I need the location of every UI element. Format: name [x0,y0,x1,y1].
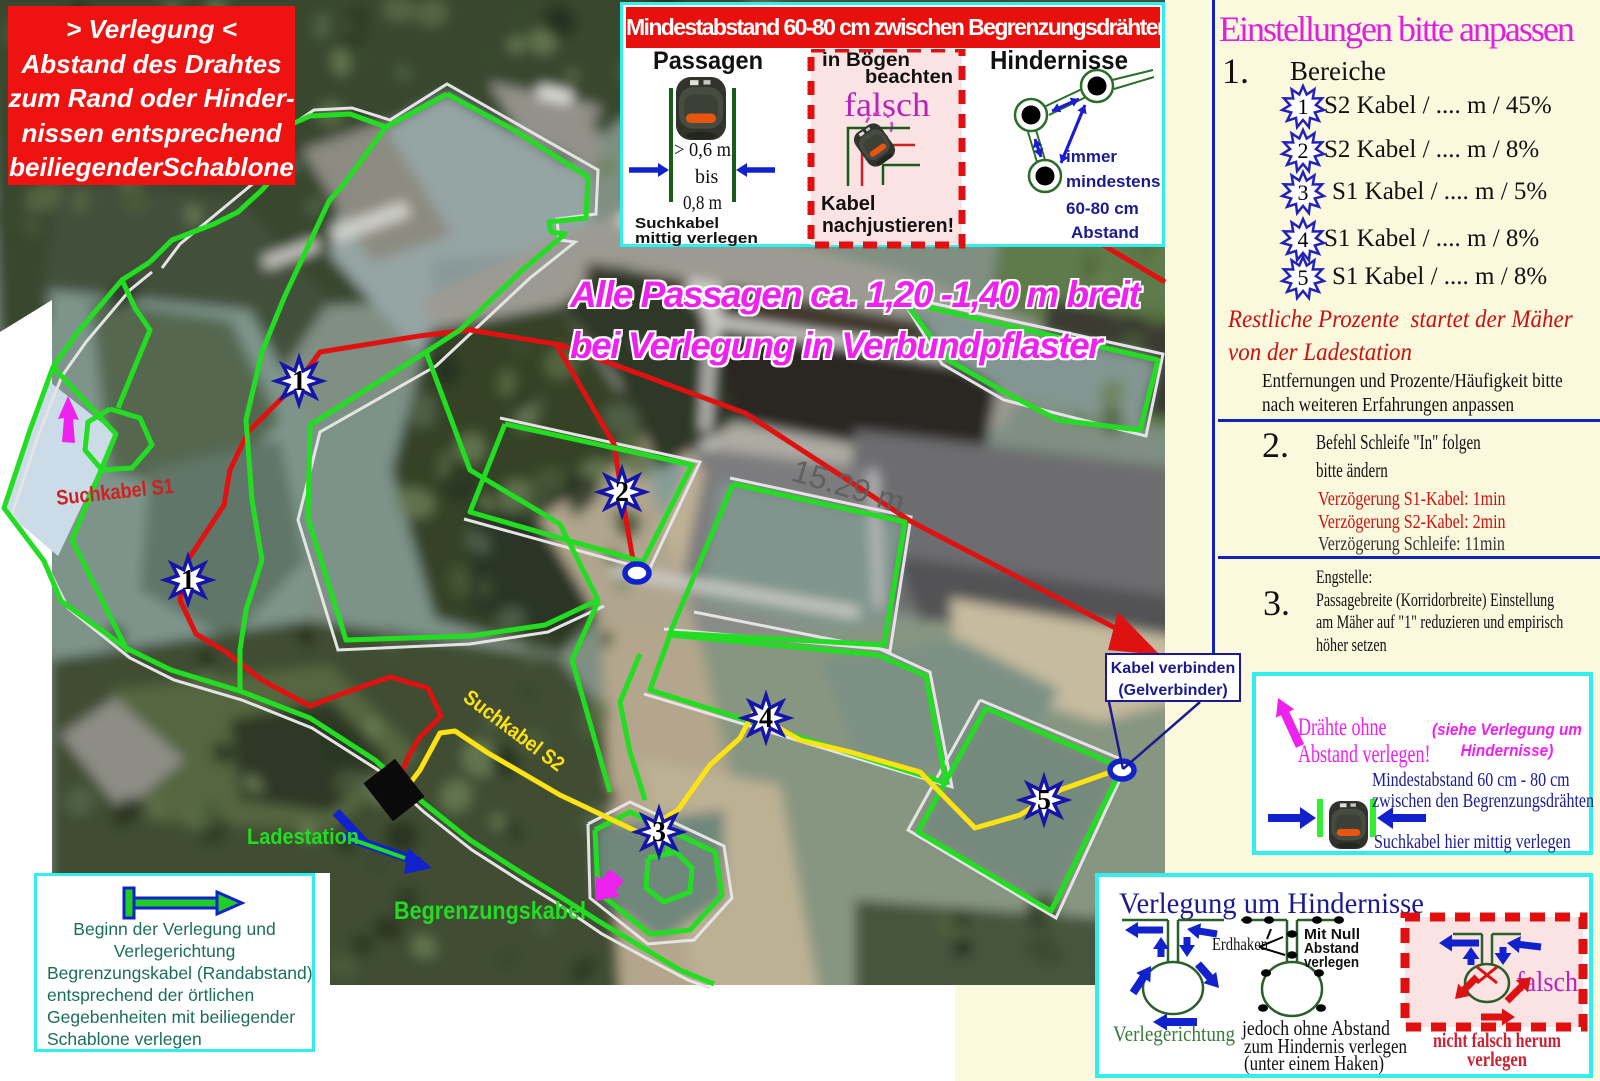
svg-text:0,8 m: 0,8 m [683,192,722,214]
svg-text:nachjustieren!: nachjustieren! [822,215,954,237]
svg-text:beachten: beachten [865,67,953,88]
svg-text:Passagen: Passagen [653,49,763,75]
svg-text:1: 1 [181,565,195,596]
svg-text:1: 1 [292,366,306,397]
svg-text:(unter einem Haken): (unter einem Haken) [1244,1051,1384,1074]
svg-text:4: 4 [759,703,773,734]
svg-text:2: 2 [615,477,629,508]
svg-text:3: 3 [652,817,666,848]
svg-text:bis: bis [695,166,719,188]
svg-text:Abstand: Abstand [1071,223,1139,242]
svg-text:falsch: falsch [844,87,930,124]
svg-text:1: 1 [1298,94,1309,119]
svg-text:5: 5 [1037,785,1051,816]
svg-text:Verlegerichtung: Verlegerichtung [1113,1021,1235,1046]
svg-text:3: 3 [1298,180,1309,205]
svg-text:> 0,6 m: > 0,6 m [674,139,731,161]
svg-text:Erdhaken: Erdhaken [1212,934,1268,954]
svg-text:Begrenzungskabel: Begrenzungskabel [394,897,586,925]
svg-text:Hindernisse: Hindernisse [990,49,1128,75]
svg-text:2: 2 [1298,138,1309,163]
svg-text:5: 5 [1298,265,1309,290]
svg-text:verlegen: verlegen [1467,1047,1527,1071]
svg-text:Ladestation: Ladestation [247,824,359,849]
svg-text:Verlegung um Hindernisse: Verlegung um Hindernisse [1119,887,1424,920]
svg-text:Kabel: Kabel [821,193,875,215]
svg-text:4: 4 [1298,227,1309,252]
svg-text:verlegen: verlegen [1304,954,1359,971]
svg-text:mittig verlegen: mittig verlegen [635,230,758,247]
svg-text:immer: immer [1066,147,1117,166]
svg-text:60-80 cm: 60-80 cm [1066,199,1139,218]
svg-text:mindestens: mindestens [1066,172,1160,191]
